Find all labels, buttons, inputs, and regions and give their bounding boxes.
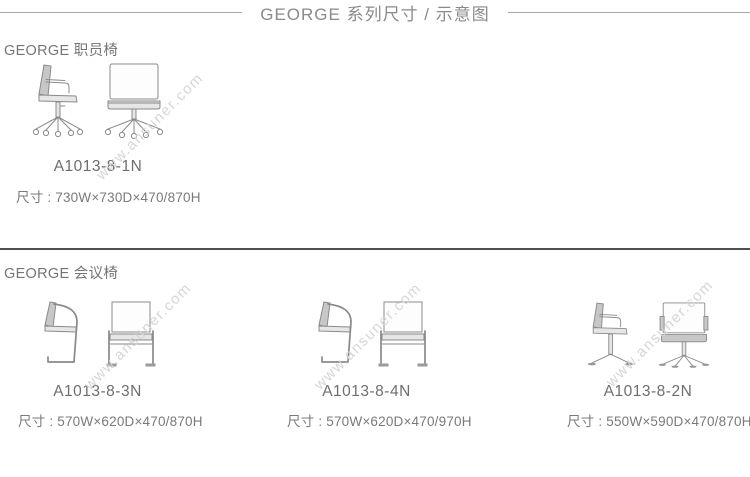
title-rule-left [0, 12, 242, 13]
chair-views [29, 60, 208, 140]
section-heading-staff-chair: GEORGE 职员椅 [4, 39, 118, 60]
four-star-swivel-chair-front-view-drawing [656, 301, 712, 370]
dimensions-label: 尺寸 : 570W×620D×470/870H [15, 410, 210, 430]
office-swivel-chair-front-view-drawing [102, 62, 166, 140]
page-header: GEORGE 系列尺寸 / 示意图 [0, 0, 750, 24]
model-label: A1013-8-2N [564, 383, 732, 401]
four-star-swivel-chair-side-view-drawing [585, 300, 638, 370]
dimensions-label: 尺寸 : 550W×590D×470/870H [564, 410, 750, 430]
section-divider [0, 248, 750, 250]
model-label: A1013-8-4N [285, 383, 448, 401]
model-label: A1013-8-3N [15, 383, 180, 401]
dimensions-label: 尺寸 : 570W×620D×470/970H [285, 410, 480, 430]
chair-views [36, 296, 210, 370]
product-item: A1013-8-2N 尺寸 : 550W×590D×470/870H [564, 296, 750, 430]
cantilever-chair-side-view-drawing [36, 300, 88, 370]
chair-views [310, 296, 480, 370]
page-title: GEORGE 系列尺寸 / 示意图 [260, 0, 490, 25]
product-item: A1013-8-1N 尺寸 : 730W×730D×470/870H [13, 60, 208, 206]
dimensions-label: 尺寸 : 730W×730D×470/870H [13, 186, 208, 206]
product-item: A1013-8-4N 尺寸 : 570W×620D×470/970H [285, 296, 480, 430]
product-item: A1013-8-3N 尺寸 : 570W×620D×470/870H [15, 296, 210, 430]
office-swivel-chair-side-view-drawing [29, 62, 89, 140]
cantilever-chair-side-view-drawing [310, 300, 362, 370]
title-rule-right [508, 12, 750, 13]
chair-views [585, 296, 750, 370]
model-label: A1013-8-1N [13, 158, 183, 176]
section-heading-conference-chair: GEORGE 会议椅 [4, 262, 118, 283]
cantilever-chair-front-view-drawing [378, 300, 428, 370]
cantilever-chair-front-view-drawing [106, 300, 156, 370]
